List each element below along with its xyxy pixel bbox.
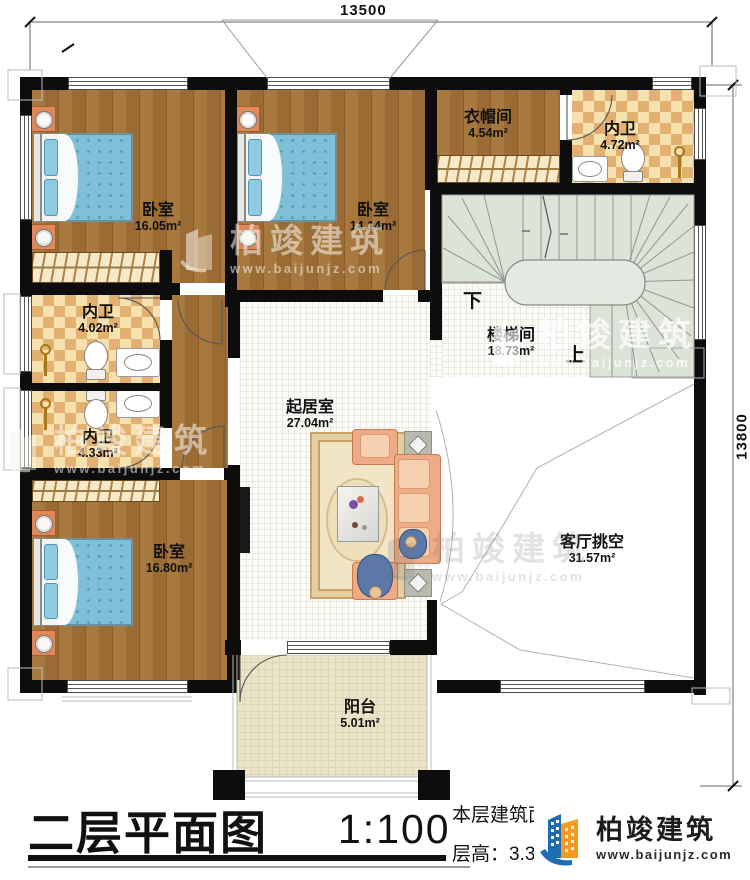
towel-bar <box>44 408 47 430</box>
wall-segment <box>425 90 437 190</box>
wall-segment <box>20 468 180 480</box>
wall-segment <box>225 90 237 290</box>
lamp <box>35 635 53 653</box>
lamp <box>239 111 257 129</box>
stair-down-mark: 下 <box>463 286 482 313</box>
brand-logo-text: 柏竣建筑 www.baijunjz.com <box>596 817 732 862</box>
porch-roof-outline <box>222 20 438 78</box>
wall-segment <box>692 77 706 90</box>
window <box>267 77 390 90</box>
room-label-bath-top: 内卫 4.72m² <box>600 122 640 152</box>
sofa-cushion <box>398 459 430 489</box>
room-label-bedroom1: 卧室 16.05m² <box>135 203 182 233</box>
room-name: 衣帽间 <box>464 110 512 127</box>
watermark-url: www.baijunjz.com <box>432 569 592 584</box>
wall-segment <box>418 290 442 302</box>
wall-segment <box>560 90 572 95</box>
wall-segment <box>228 465 240 655</box>
bed-pillow <box>44 583 58 619</box>
wall-segment <box>430 183 442 340</box>
room-label-living: 起居室 27.04m² <box>286 400 334 430</box>
window <box>67 680 188 693</box>
window <box>500 680 645 693</box>
window <box>20 296 32 372</box>
bed-pillow <box>248 179 262 216</box>
wall-segment <box>390 640 437 655</box>
person-head <box>405 536 417 548</box>
brand-logo: 柏竣建筑 www.baijunjz.com <box>534 803 746 875</box>
wall-segment <box>437 680 500 693</box>
room-area: 31.57m² <box>560 552 624 565</box>
room-area: 5.01m² <box>340 717 380 730</box>
wall-segment <box>160 250 172 295</box>
wall-segment <box>560 140 572 183</box>
room-label-bedroom2: 卧室 14.14m² <box>350 203 397 233</box>
wall-segment <box>20 372 32 390</box>
window <box>68 77 188 90</box>
room-name: 卧室 <box>135 203 182 220</box>
toilet-tank <box>623 171 643 182</box>
wall-segment <box>160 295 172 300</box>
table-cup <box>352 522 358 528</box>
room-area: 4.54m² <box>464 127 512 140</box>
floor-living-link <box>430 340 442 377</box>
wall-segment <box>694 340 706 695</box>
wall-segment <box>694 90 706 108</box>
wall-segment <box>20 77 68 90</box>
bed-headboard <box>237 133 245 222</box>
bed-pillow <box>248 139 262 176</box>
room-name: 阳台 <box>340 700 380 717</box>
wall-segment <box>188 77 267 90</box>
window <box>20 115 32 220</box>
floor-balcony <box>237 655 427 777</box>
wall-segment <box>20 90 32 115</box>
floorplan-canvas: 卧室 16.05m² 卧室 14.14m² 衣帽间 4.54m² 内卫 4.72… <box>0 0 750 880</box>
room-label-bath-mid: 内卫 4.02m² <box>78 305 118 335</box>
towel-bar <box>678 156 681 178</box>
table-flowers <box>357 496 364 503</box>
room-name: 客厅挑空 <box>560 535 624 552</box>
page-title: 二层平面图 <box>28 797 268 863</box>
wall-segment <box>645 680 706 693</box>
dimension-height: 13800 <box>734 407 750 467</box>
room-area: 18.73m² <box>487 345 535 358</box>
room-name: 卧室 <box>350 203 397 220</box>
room-name: 卧室 <box>146 545 193 562</box>
toilet <box>84 341 108 371</box>
sink-basin <box>578 161 602 177</box>
room-name: 起居室 <box>286 400 334 417</box>
armchair-cushion <box>360 434 390 458</box>
room-area: 27.04m² <box>286 417 334 430</box>
sink-basin <box>124 395 152 412</box>
lamp <box>35 515 53 533</box>
void-outline <box>436 384 694 678</box>
stair-up-mark: 上 <box>566 340 585 367</box>
room-label-stairwell: 楼梯间 18.73m² <box>487 328 535 358</box>
brand-url: www.baijunjz.com <box>596 847 732 862</box>
room-name: 内卫 <box>78 430 118 447</box>
window <box>287 641 390 654</box>
room-name: 楼梯间 <box>487 328 535 345</box>
drawing-scale: 1:100 <box>338 806 451 853</box>
room-area: 4.72m² <box>600 139 640 152</box>
wall-segment <box>437 183 694 195</box>
room-name: 内卫 <box>600 122 640 139</box>
room-label-bath-low: 内卫 4.33m² <box>78 430 118 460</box>
room-name: 内卫 <box>78 305 118 322</box>
room-area: 14.14m² <box>350 220 397 233</box>
toilet <box>84 399 108 429</box>
wall-segment <box>228 295 240 358</box>
bed-pillow <box>44 179 58 216</box>
towel-bar <box>44 354 47 376</box>
stair-break-line <box>522 196 568 258</box>
room-label-bedroom3: 卧室 16.80m² <box>146 545 193 575</box>
floor-hallway <box>172 295 228 468</box>
window <box>652 77 692 90</box>
room-label-void: 客厅挑空 31.57m² <box>560 535 624 565</box>
wall-segment <box>188 680 237 693</box>
brand-name: 柏竣建筑 <box>596 817 732 844</box>
window <box>694 225 706 340</box>
sofa-cushion <box>398 493 430 523</box>
title-underline-thin <box>28 866 470 868</box>
lamp <box>35 111 53 129</box>
person-head <box>369 586 382 599</box>
table-cup <box>362 525 367 530</box>
wall-segment <box>32 383 162 391</box>
room-label-cloakroom: 衣帽间 4.54m² <box>464 110 512 140</box>
room-area: 16.05m² <box>135 220 182 233</box>
brand-logo-icon <box>534 808 592 870</box>
tv <box>240 487 250 553</box>
lamp <box>35 229 53 247</box>
window <box>694 108 706 160</box>
closet-bedroom3 <box>32 480 160 502</box>
room-area: 4.02m² <box>78 322 118 335</box>
toilet-tank <box>86 369 106 380</box>
sink-basin <box>124 354 152 371</box>
bed-headboard <box>33 133 41 222</box>
coffee-table <box>337 486 379 542</box>
wall-segment <box>694 160 706 225</box>
closet-bedroom1 <box>32 252 160 283</box>
wall-segment <box>20 468 32 680</box>
room-area: 4.33m² <box>78 447 118 460</box>
room-label-balcony: 阳台 5.01m² <box>340 700 380 730</box>
wall-segment <box>427 600 437 642</box>
bed-headboard <box>33 538 41 626</box>
lamp <box>239 229 257 247</box>
bed-pillow <box>44 544 58 580</box>
title-underline-thick <box>28 855 446 861</box>
closet-cloakroom <box>437 155 560 183</box>
wall-segment <box>20 283 180 295</box>
window <box>20 390 32 468</box>
room-area: 16.80m² <box>146 562 193 575</box>
dimension-width: 13500 <box>340 2 387 19</box>
bed-pillow <box>44 139 58 176</box>
wall-segment <box>390 77 652 90</box>
wall-segment <box>20 680 67 693</box>
wall-segment <box>237 290 383 302</box>
